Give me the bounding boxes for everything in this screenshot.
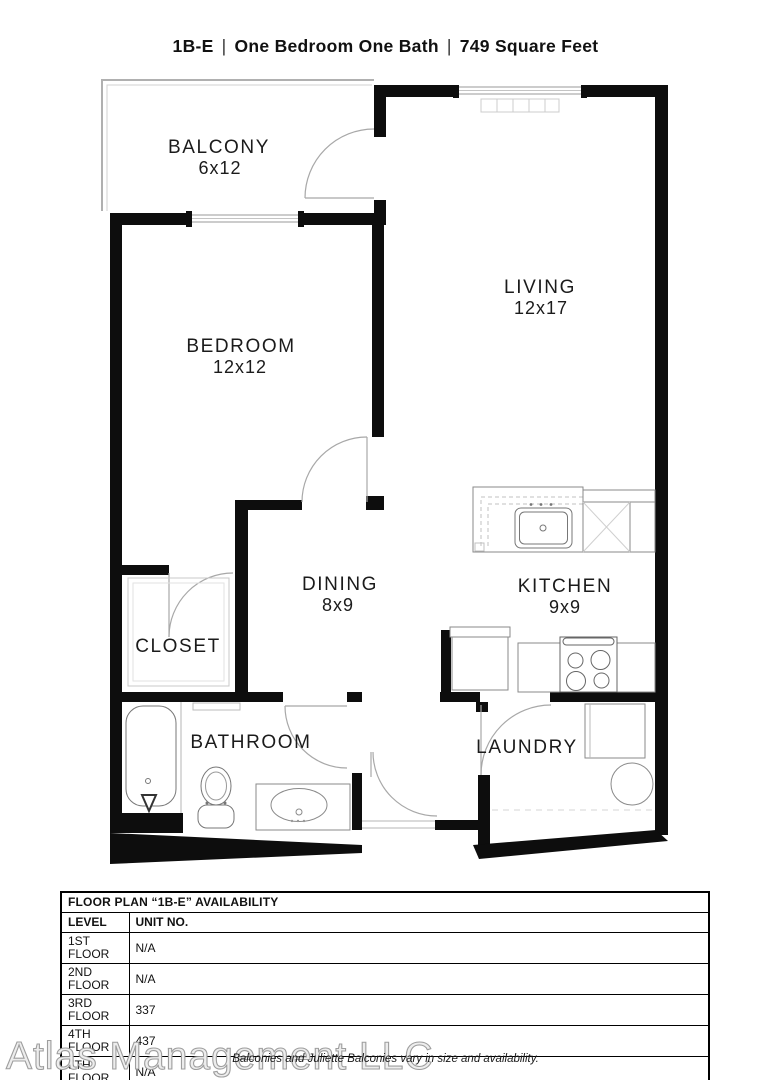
bathroom-shelf <box>193 703 240 710</box>
closet-shelving <box>128 578 229 686</box>
column-header-level: LEVEL <box>61 913 129 933</box>
unit-cell: N/A <box>129 933 709 964</box>
table-title: FLOOR PLAN “1B-E” AVAILABILITY <box>61 892 709 913</box>
table-row: 3RD FLOOR 337 <box>61 995 709 1026</box>
room-label-bedroom: BEDROOM <box>186 336 295 357</box>
room-dim-balcony: 6x12 <box>198 158 241 178</box>
room-dim-living: 12x17 <box>514 298 568 318</box>
floor-plan-drawing: BALCONY 6x12 LIVING 12x17 BEDROOM 12x12 … <box>0 0 771 890</box>
column-header-unit-no: UNIT NO. <box>129 913 709 933</box>
level-cell: 2ND FLOOR <box>61 964 129 995</box>
bedroom-door <box>302 437 367 502</box>
room-dim-kitchen: 9x9 <box>549 597 581 617</box>
bathtub <box>126 702 181 813</box>
stove <box>518 637 655 692</box>
level-cell: 1ST FLOOR <box>61 933 129 964</box>
unit-cell: N/A <box>129 964 709 995</box>
room-dim-dining: 8x9 <box>322 595 354 615</box>
toilet <box>198 767 234 828</box>
balcony-door <box>305 129 374 198</box>
dryer <box>611 763 653 805</box>
unit-cell: 337 <box>129 995 709 1026</box>
table-row: 2ND FLOOR N/A <box>61 964 709 995</box>
room-label-kitchen: KITCHEN <box>518 576 613 597</box>
dishwasher <box>583 502 630 552</box>
room-label-laundry: LAUNDRY <box>476 737 578 758</box>
entry-door <box>362 752 437 828</box>
vanity-sink <box>256 784 350 830</box>
table-title-row: FLOOR PLAN “1B-E” AVAILABILITY <box>61 892 709 913</box>
room-label-closet: CLOSET <box>135 636 221 657</box>
kitchen-sink <box>515 503 572 548</box>
room-label-dining: DINING <box>302 574 378 595</box>
door-swings <box>169 129 551 828</box>
room-label-bathroom: BATHROOM <box>190 732 311 753</box>
bedroom-window <box>186 211 304 227</box>
washer <box>585 704 645 758</box>
table-header-row: LEVEL UNIT NO. <box>61 913 709 933</box>
table-row: 1ST FLOOR N/A <box>61 933 709 964</box>
room-dim-bedroom: 12x12 <box>213 357 267 377</box>
level-cell: 3RD FLOOR <box>61 995 129 1026</box>
room-label-living: LIVING <box>504 277 576 298</box>
floor-plan-page: 1B-E|One Bedroom One Bath|749 Square Fee… <box>0 0 771 1080</box>
footnote: Balconies and Juliette Balconies vary in… <box>0 1053 771 1065</box>
refrigerator <box>450 627 510 690</box>
room-label-balcony: BALCONY <box>168 137 270 158</box>
living-window <box>453 85 587 98</box>
baseboard-heater <box>481 99 559 112</box>
